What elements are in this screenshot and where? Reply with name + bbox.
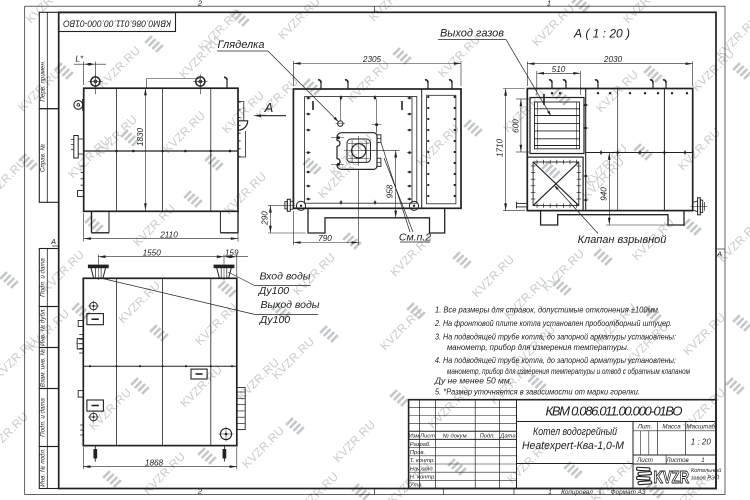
svg-text:КВМ 0.086.011.00.000-01ВО: КВМ 0.086.011.00.000-01ВО [546,404,683,419]
svg-text:1: 1 [701,457,704,464]
svg-text:Листов: Листов [665,457,689,464]
svg-text:Справ. №: Справ. № [40,144,47,172]
svg-text:958: 958 [385,184,394,198]
svg-text:Пров.: Пров. [410,450,425,456]
svg-text:Клапан взрывной: Клапан взрывной [578,234,667,246]
svg-text:790: 790 [318,234,332,243]
svg-text:Подп.: Подп. [480,434,495,440]
svg-text:А: А [50,237,56,246]
svg-text:5. *Размер уточняется в зависи: 5. *Размер уточняется в зависимости от м… [435,388,640,397]
svg-text:Т. контр.: Т. контр. [410,458,435,464]
svg-text:Лит.: Лит. [637,423,653,430]
svg-text:А: А [264,100,274,115]
svg-text:KVZR: KVZR [654,467,690,487]
svg-text:Подп. и дата: Подп. и дата [40,398,47,437]
svg-text:2110: 2110 [159,230,178,239]
svg-text:Лист: Лист [636,457,653,464]
svg-text:Выход воды: Выход воды [260,299,319,311]
svg-text:2: 2 [197,0,203,7]
svg-text:Формат А3: Формат А3 [611,489,646,496]
svg-text:Инв. № дубл.: Инв. № дубл. [40,308,47,346]
svg-text:Нач.отд.: Нач.отд. [410,466,434,472]
svg-text:Масса: Масса [662,423,681,430]
svg-text:4. На подводящей трубе котла,: 4. На подводящей трубе котла, до запорно… [435,356,676,365]
svg-text:Ду не менее 50 мм.: Ду не менее 50 мм. [434,377,512,386]
svg-text:2030: 2030 [603,55,623,64]
svg-text:1550: 1550 [143,249,162,258]
svg-text:Подп. и дата: Подп. и дата [40,258,47,297]
svg-text:1868: 1868 [145,458,164,467]
svg-text:Перв. примен.: Перв. примен. [40,60,47,101]
svg-text:Взам. инв. №: Взам. инв. № [40,349,47,388]
svg-text:Изм: Изм [409,434,420,440]
svg-text:Котел водогрейный: Котел водогрейный [533,426,617,438]
svg-text:Гляделка: Гляделка [218,39,265,51]
svg-text:1: 1 [548,489,552,496]
svg-text:290: 290 [261,211,270,226]
svg-text:завод РЭП: завод РЭП [690,476,720,482]
svg-text:Лист: Лист [419,434,435,440]
svg-text:159: 159 [225,249,239,258]
svg-text:А ( 1 : 20 ): А ( 1 : 20 ) [573,27,630,41]
svg-text:манометр, прибор для измерения: манометр, прибор для измерения температу… [447,343,629,352]
svg-text:Копировал: Копировал [561,489,593,496]
svg-text:Инв. № подл.: Инв. № подл. [40,448,47,486]
svg-text:№ докум.: № докум. [443,434,469,440]
svg-text:940: 940 [600,187,609,201]
svg-text:Дата: Дата [499,434,516,440]
svg-text:1830: 1830 [136,127,145,146]
svg-text:1. Все размеры для справок, до: 1. Все размеры для справок, допустимые о… [435,306,660,315]
svg-text:2. На фронтовой плите котла ус: 2. На фронтовой плите котла установлен п… [434,319,672,328]
svg-text:Н. контр.: Н. контр. [410,475,436,481]
svg-text:Котельный: Котельный [691,467,721,474]
svg-text:L*: L* [75,55,84,64]
svg-text:Ду100: Ду100 [259,314,290,326]
svg-text:Ду100: Ду100 [258,285,289,297]
svg-text:Выход газов: Выход газов [440,28,504,40]
svg-text:Утв.: Утв. [409,482,423,488]
svg-text:манометр, прибор для измерения: манометр, прибор для измерения температу… [447,367,690,376]
svg-text:1: 1 [547,0,551,7]
svg-text:Масштаб: Масштаб [686,423,715,430]
svg-text:КВМ0.086.011.00.000-01ВО: КВМ0.086.011.00.000-01ВО [63,18,171,28]
svg-text:1710: 1710 [496,138,505,157]
svg-text:Разраб.: Разраб. [410,442,431,448]
svg-text:Вход воды: Вход воды [260,271,311,283]
svg-text:3. На подводящей трубе котла,: 3. На подводящей трубе котла, до запорно… [435,333,676,342]
svg-text:А: А [716,250,722,259]
svg-text:600: 600 [511,119,520,133]
svg-text:1 : 20: 1 : 20 [691,438,712,447]
svg-text:510: 510 [552,65,566,74]
svg-text:2305: 2305 [362,55,382,64]
svg-text:Heatexpert-Ква-1,0-М: Heatexpert-Ква-1,0-М [522,440,624,452]
